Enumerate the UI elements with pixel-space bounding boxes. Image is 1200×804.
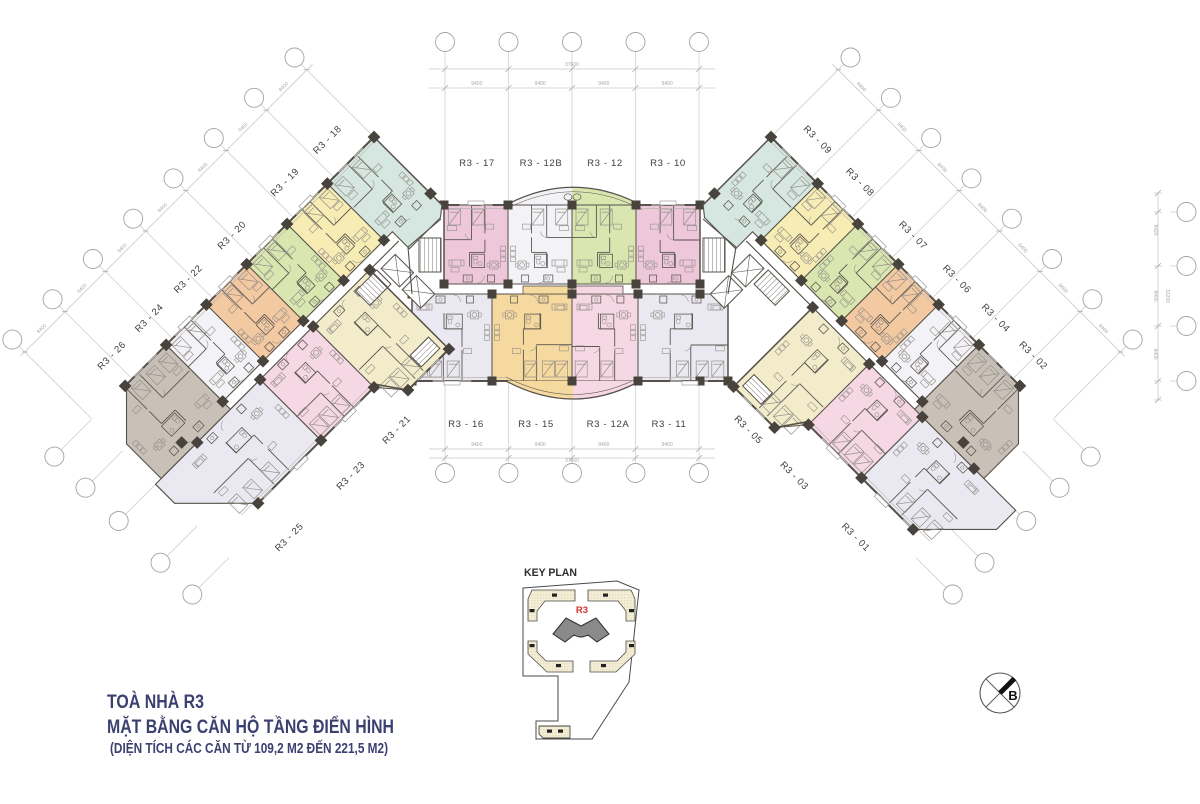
svg-text:9400: 9400 [471,81,482,87]
svg-text:9400: 9400 [662,81,673,87]
svg-text:37600: 37600 [565,458,579,464]
svg-text:R3 - 10: R3 - 10 [650,158,686,169]
svg-text:R3 - 11: R3 - 11 [652,419,687,430]
svg-text:8420: 8420 [1152,224,1158,235]
svg-text:37600: 37600 [565,62,579,68]
svg-text:8400: 8400 [1152,290,1158,301]
svg-text:9400: 9400 [598,442,609,448]
svg-text:9400: 9400 [471,442,482,448]
svg-text:B: B [1008,688,1017,703]
svg-text:9400: 9400 [535,442,546,448]
svg-text:(DIỆN TÍCH CÁC CĂN TỪ 109,2 M2: (DIỆN TÍCH CÁC CĂN TỪ 109,2 M2 ĐẾN 221,5… [110,739,388,757]
svg-text:R3 - 15: R3 - 15 [518,419,554,430]
svg-text:MẶT BẰNG CĂN HỘ TẦNG ĐIỂN HÌNH: MẶT BẰNG CĂN HỘ TẦNG ĐIỂN HÌNH [107,716,394,738]
svg-text:9400: 9400 [598,81,609,87]
svg-text:KEY PLAN: KEY PLAN [524,567,577,579]
svg-text:9400: 9400 [535,81,546,87]
svg-text:R3 - 17: R3 - 17 [459,158,495,169]
svg-text:TOÀ NHÀ R3: TOÀ NHÀ R3 [107,691,204,713]
svg-text:R3: R3 [576,605,588,616]
svg-text:R3 - 12B: R3 - 12B [520,158,563,169]
svg-text:8400: 8400 [1152,348,1158,359]
svg-text:9400: 9400 [662,442,673,448]
svg-text:R3 - 16: R3 - 16 [448,419,484,430]
svg-text:R3 - 12A: R3 - 12A [587,419,630,430]
svg-text:R3 - 12: R3 - 12 [587,158,623,169]
svg-text:31200: 31200 [1164,289,1170,303]
